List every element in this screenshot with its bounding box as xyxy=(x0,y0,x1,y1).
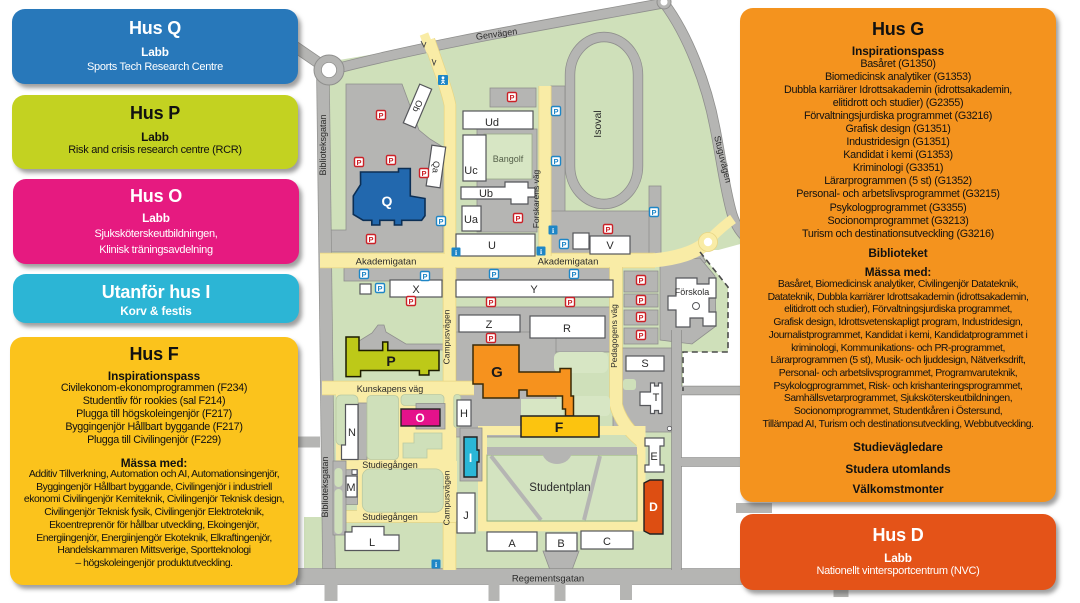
svg-text:V: V xyxy=(606,240,614,252)
svg-text:S: S xyxy=(641,358,648,370)
svg-text:Akademigatan: Akademigatan xyxy=(538,257,599,268)
svg-text:Forskarens väg: Forskarens väg xyxy=(531,169,541,228)
svg-text:Studiegången: Studiegången xyxy=(362,460,418,470)
svg-text:Biblioteksgatan: Biblioteksgatan xyxy=(320,456,330,517)
svg-text:Regementsgatan: Regementsgatan xyxy=(512,574,584,585)
svg-text:P: P xyxy=(386,353,395,369)
svg-text:Studiegången: Studiegången xyxy=(362,512,418,522)
svg-text:Förskola: Förskola xyxy=(675,287,710,297)
svg-text:J: J xyxy=(463,510,469,522)
svg-text:X: X xyxy=(412,284,420,296)
svg-text:B: B xyxy=(557,538,564,550)
svg-text:F: F xyxy=(555,419,564,435)
svg-text:Ud: Ud xyxy=(485,117,499,129)
svg-text:H: H xyxy=(460,408,468,420)
svg-text:Campusvägen: Campusvägen xyxy=(442,309,452,364)
svg-text:Uc: Uc xyxy=(464,165,478,177)
svg-text:Ub: Ub xyxy=(479,188,493,200)
svg-text:Studentplan: Studentplan xyxy=(529,482,590,494)
svg-text:G: G xyxy=(491,364,503,381)
svg-text:Campusvägen: Campusvägen xyxy=(442,470,452,525)
svg-text:Z: Z xyxy=(486,319,493,331)
svg-text:I: I xyxy=(469,451,472,465)
svg-text:L: L xyxy=(369,537,375,549)
svg-text:Ua: Ua xyxy=(464,214,479,226)
svg-text:T: T xyxy=(653,392,660,404)
svg-text:Akademigatan: Akademigatan xyxy=(356,257,417,268)
svg-text:U: U xyxy=(488,240,496,252)
svg-text:Bangolf: Bangolf xyxy=(493,154,524,164)
svg-text:D: D xyxy=(649,500,658,514)
svg-text:C: C xyxy=(603,536,611,548)
svg-text:Biblioteksgatan: Biblioteksgatan xyxy=(318,114,328,175)
svg-text:E: E xyxy=(650,451,657,463)
svg-text:Y: Y xyxy=(530,284,538,296)
svg-text:N: N xyxy=(348,427,356,439)
svg-text:R: R xyxy=(563,323,571,335)
svg-text:M: M xyxy=(346,482,355,494)
svg-text:A: A xyxy=(508,538,516,550)
svg-text:Pedagogens väg: Pedagogens väg xyxy=(609,304,619,368)
svg-text:Kunskapens väg: Kunskapens väg xyxy=(357,384,424,394)
svg-text:O: O xyxy=(415,411,424,425)
svg-text:Qa: Qa xyxy=(430,161,441,174)
svg-text:Q: Q xyxy=(382,193,393,209)
svg-text:Isoval: Isoval xyxy=(592,110,604,137)
